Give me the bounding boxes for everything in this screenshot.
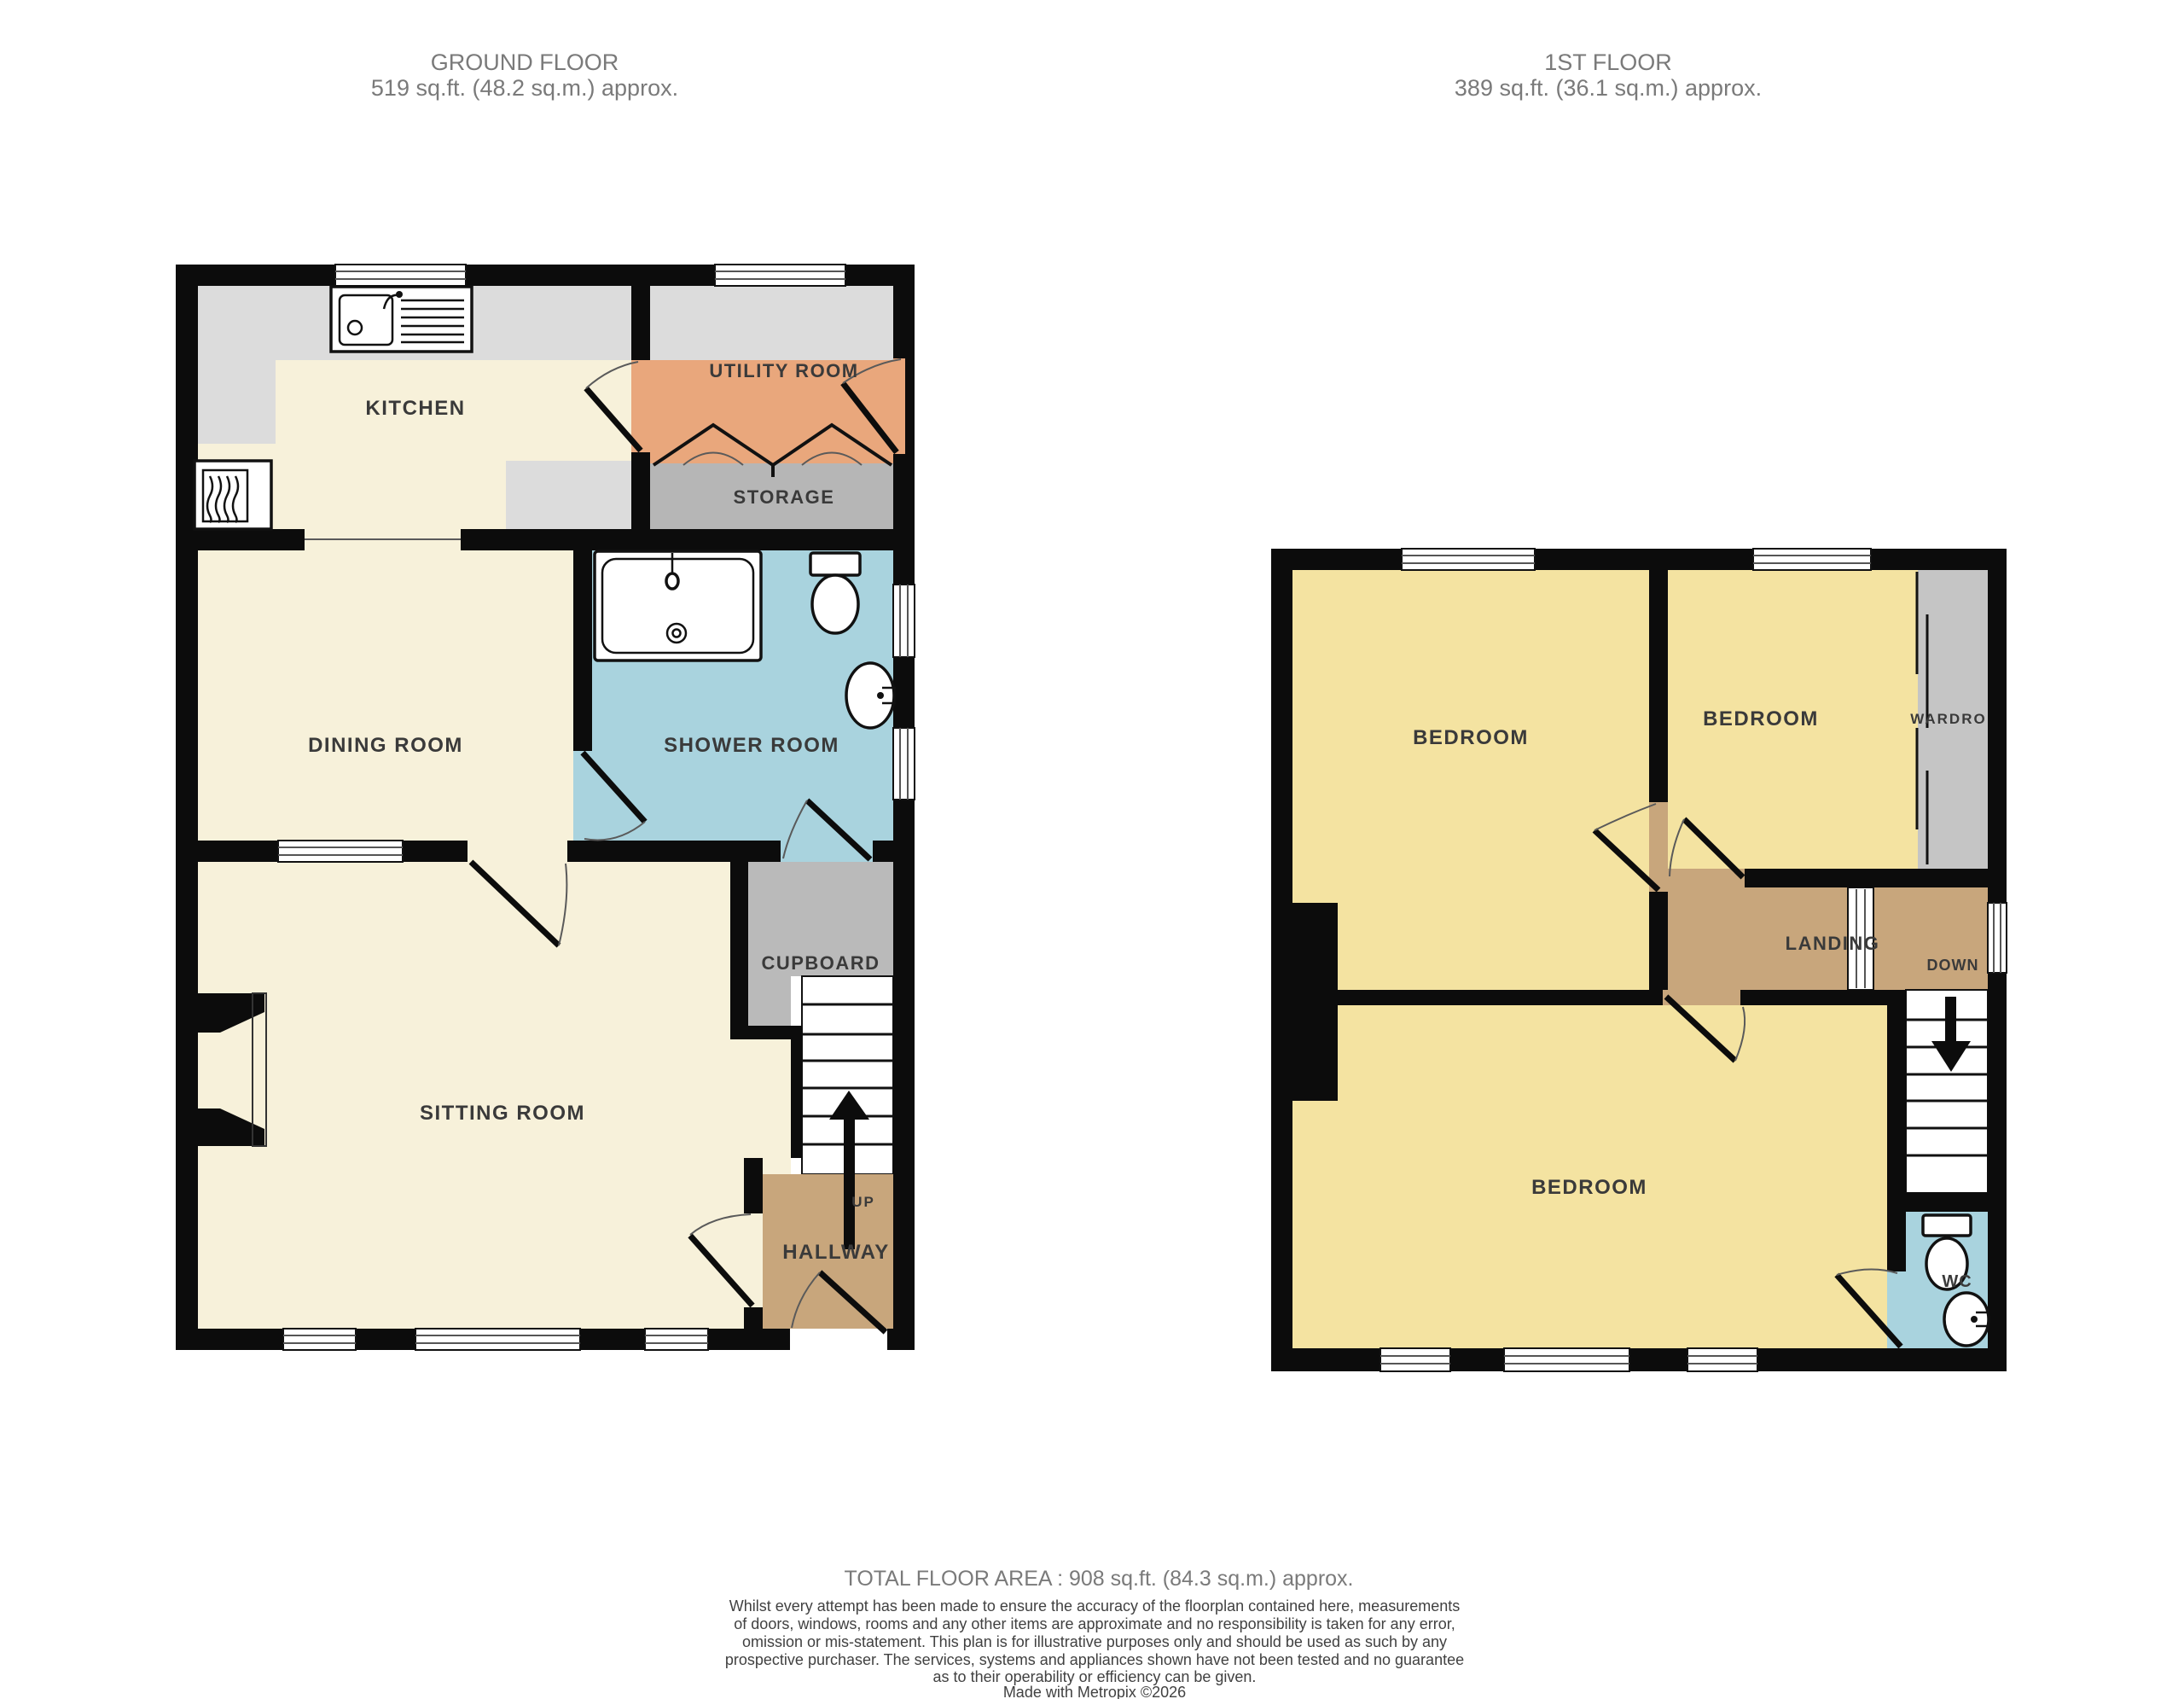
landing-label: LANDING [1786,933,1880,954]
first-floor-plan: BEDROOM BEDROOM WARDRO LANDING DOWN BEDR… [1271,549,2007,1371]
ground-floor-plan: KITCHEN UTILITY ROOM STORAGE DINING ROOM… [176,265,915,1350]
basin-icon [846,663,896,728]
total-floor-area: TOTAL FLOOR AREA : 908 sq.ft. (84.3 sq.m… [845,1567,1354,1591]
disclaimer-line: prospective purchaser. The services, sys… [725,1651,1464,1668]
disclaimer-line: as to their operability or efficiency ca… [933,1668,1257,1685]
first-floor-title: 1ST FLOOR [1544,49,1672,75]
down-label: DOWN [1927,957,1979,974]
window [893,585,915,657]
hallway-label: HALLWAY [782,1241,890,1264]
wc-label: WC [1942,1272,1972,1291]
window [645,1329,708,1350]
kitchen-sink-icon [331,287,472,352]
window [1504,1348,1629,1371]
up-label: UP [851,1194,875,1210]
window [1402,549,1535,570]
kitchen-label: KITCHEN [365,397,465,420]
sitting-room-label: SITTING ROOM [420,1102,585,1125]
shower-room-label: SHOWER ROOM [664,734,839,757]
window [1687,1348,1757,1371]
room-sitting [198,862,791,1329]
landing-alcove [1873,887,1988,990]
utility-room-label: UTILITY ROOM [709,360,858,381]
ground-floor-area: 519 sq.ft. (48.2 sq.m.) approx. [371,75,678,101]
floorplan-canvas: KITCHEN UTILITY ROOM STORAGE DINING ROOM… [0,0,2184,1699]
bedroom-right-label: BEDROOM [1703,707,1819,730]
window [415,1329,580,1350]
chimney-breast [1291,903,1338,1101]
shower-tray-icon [595,551,761,660]
room-bedroom-left [1292,570,1649,990]
disclaimer-line: omission or mis-statement. This plan is … [742,1633,1447,1650]
metropix-credit: Made with Metropix ©2026 [1003,1684,1186,1699]
room-dining [198,550,573,841]
disclaimer-line: of doors, windows, rooms and any other i… [734,1615,1455,1632]
first-floor-area: 389 sq.ft. (36.1 sq.m.) approx. [1455,75,1762,101]
utility-top-area [650,284,893,360]
cupboard-label: CUPBOARD [761,952,880,974]
ground-floor-title: GROUND FLOOR [431,49,619,75]
window [335,265,466,286]
window [1988,903,2007,973]
internal-window [278,841,403,862]
window [1753,549,1871,570]
kitchen-counter-right [506,461,631,531]
storage-label: STORAGE [734,486,835,508]
window [283,1329,356,1350]
wardrobe-label: WARDRO [1910,711,1986,727]
radiator-icon [195,461,271,529]
bedroom-bottom-label: BEDROOM [1531,1176,1647,1199]
disclaimer-line: Whilst every attempt has been made to en… [729,1597,1460,1615]
basin-icon [1944,1293,1989,1346]
dining-room-label: DINING ROOM [308,734,463,757]
toilet-icon [810,553,860,633]
room-cupboard-lower [748,976,791,1026]
window [715,265,845,286]
window [1380,1348,1450,1371]
kitchen-counter-left [198,360,276,444]
window [893,728,915,800]
bedroom-left-label: BEDROOM [1413,726,1529,749]
